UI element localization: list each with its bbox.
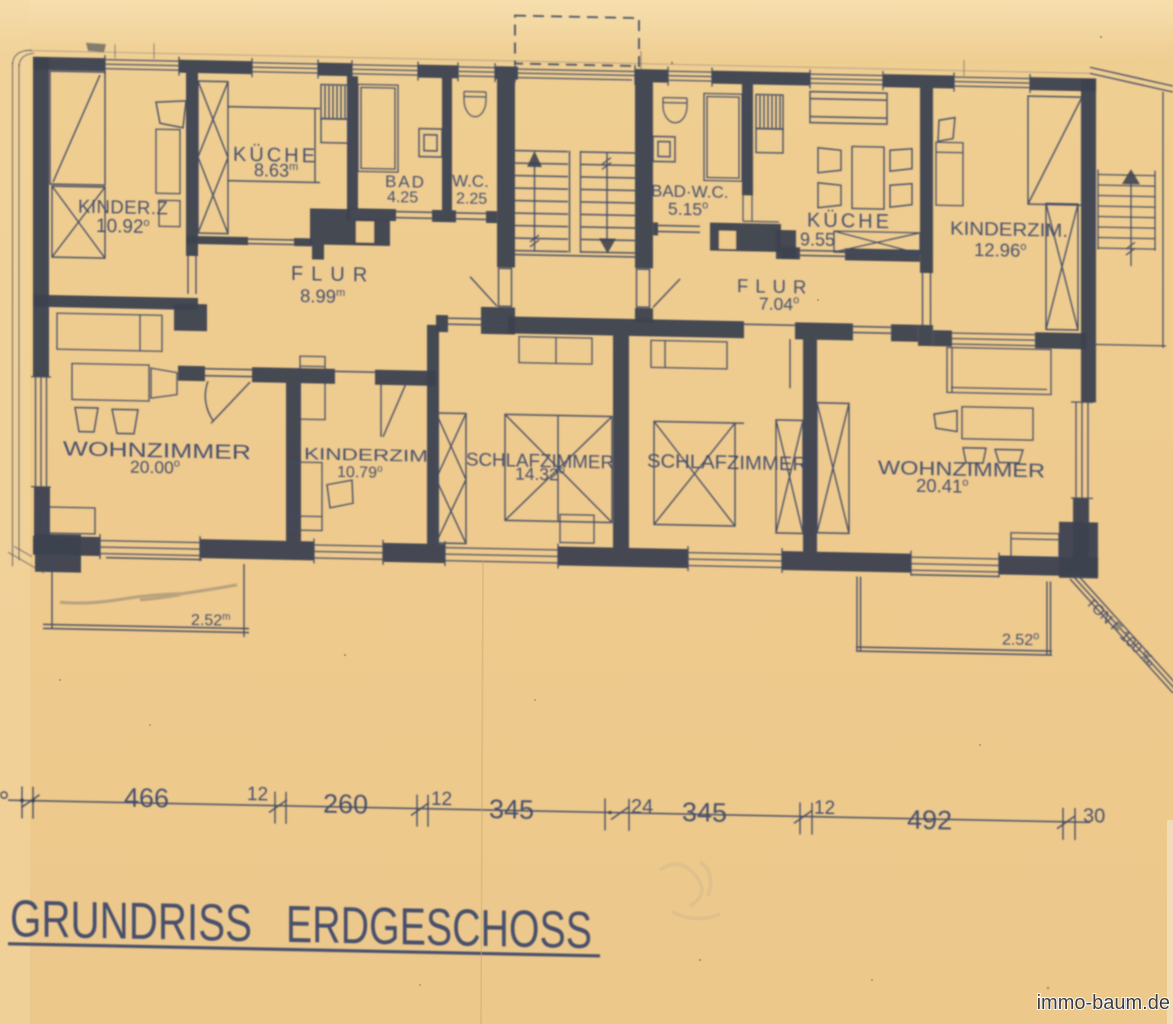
svg-text:12: 12 [814,798,835,819]
svg-text:12.96o: 12.96o [974,239,1026,261]
svg-text:10.92o: 10.92o [96,216,150,238]
svg-text:immo-baum.de: immo-baum.de [1037,992,1170,1014]
svg-text:4.25: 4.25 [387,189,418,207]
svg-text:12: 12 [431,789,452,810]
svg-text:466: 466 [124,783,169,814]
svg-text:KINDERZIM: KINDERZIM [304,445,428,466]
svg-text:SCHLAFZIMMER: SCHLAFZIMMER [647,451,807,475]
svg-text:12: 12 [247,784,268,805]
svg-text:30: 30 [1083,805,1105,827]
svg-text:10.79o: 10.79o [337,463,383,482]
svg-text:FLUR: FLUR [291,263,375,287]
svg-text:KINDERZIM.: KINDERZIM. [950,218,1068,240]
svg-text:9.55: 9.55 [800,229,835,250]
svg-text:24: 24 [631,796,653,818]
svg-text:14.32o: 14.32o [515,464,565,485]
svg-text:20.00o: 20.00o [130,457,180,478]
svg-text:345: 345 [682,797,727,828]
svg-text:KINDER.Z: KINDER.Z [78,196,168,219]
svg-text:260: 260 [323,789,368,820]
svg-text:345: 345 [489,794,534,825]
svg-text:20.41o: 20.41o [916,475,968,497]
svg-text:492: 492 [907,805,952,836]
svg-text:W.C.: W.C. [452,171,489,191]
svg-text:2.25: 2.25 [456,190,487,208]
